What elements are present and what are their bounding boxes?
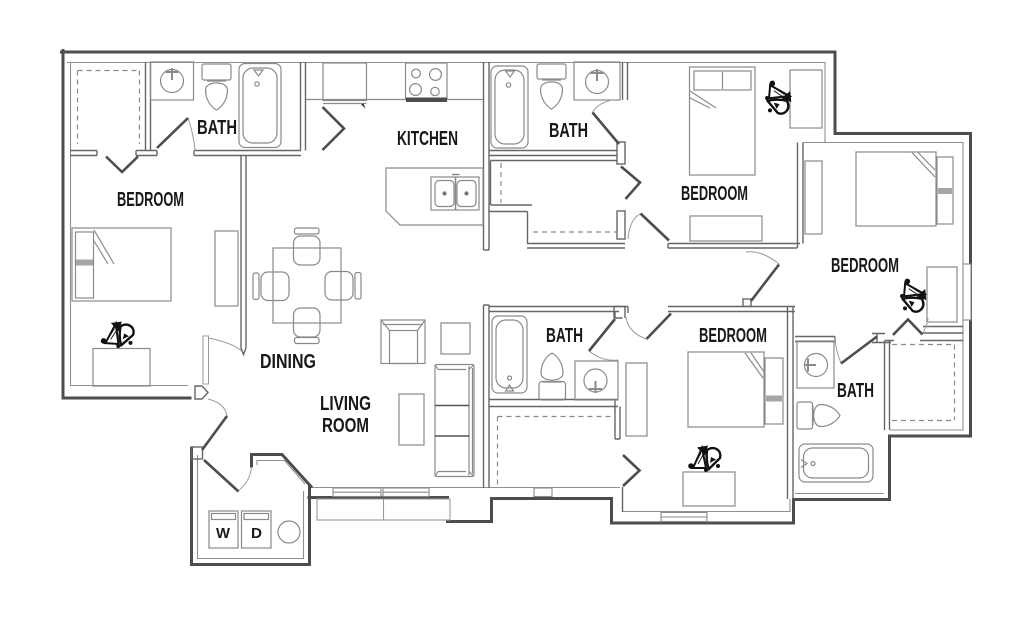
svg-text:DINING: DINING <box>260 351 316 373</box>
svg-text:BEDROOM: BEDROOM <box>681 183 748 205</box>
svg-text:BATH: BATH <box>546 325 583 347</box>
svg-text:BATH: BATH <box>549 120 588 142</box>
svg-text:BEDROOM: BEDROOM <box>699 325 767 347</box>
svg-text:ROOM: ROOM <box>322 415 369 437</box>
svg-text:BEDROOM: BEDROOM <box>831 255 899 277</box>
svg-text:BATH: BATH <box>197 117 237 139</box>
svg-text:KITCHEN: KITCHEN <box>397 128 458 150</box>
svg-text:LIVING: LIVING <box>320 393 371 415</box>
svg-text:W: W <box>216 525 231 542</box>
svg-text:BATH: BATH <box>837 380 874 402</box>
svg-text:BEDROOM: BEDROOM <box>117 189 184 211</box>
svg-text:D: D <box>251 525 262 542</box>
